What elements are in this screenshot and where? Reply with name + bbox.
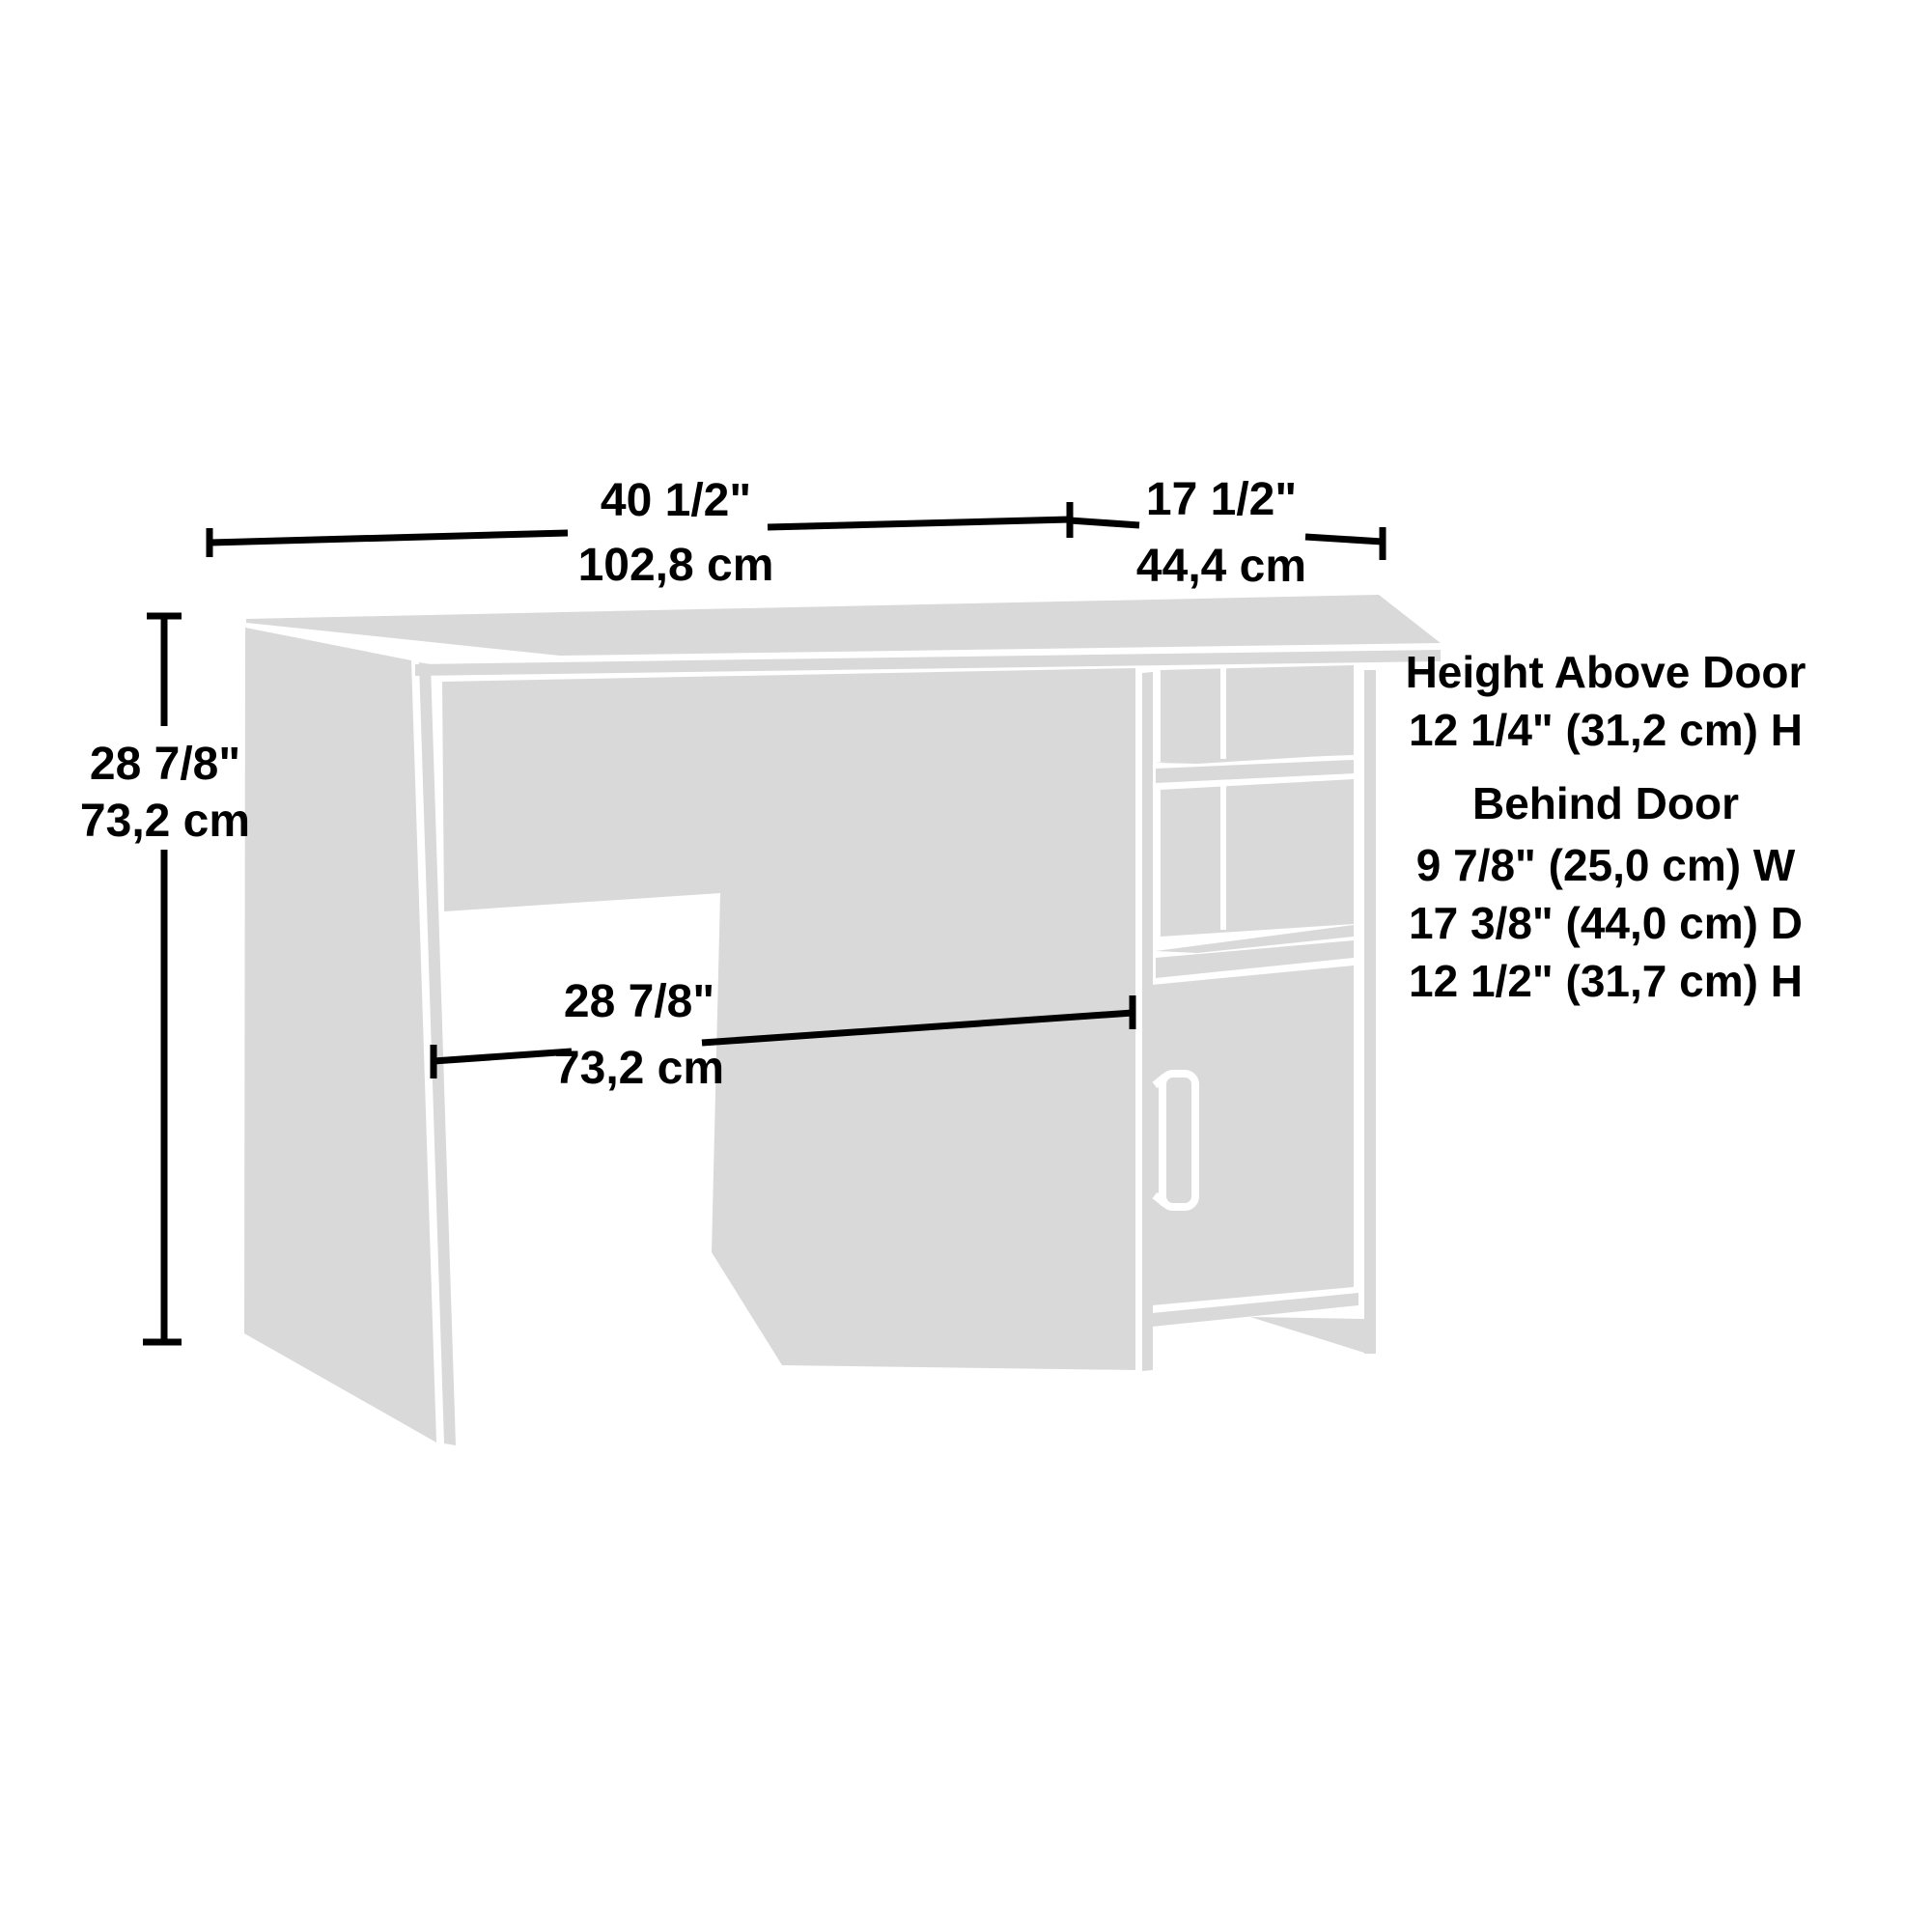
above-door-height: 12 1/4" (31,2 cm) H (1409, 705, 1803, 755)
door-annotations: Height Above Door 12 1/4" (31,2 cm) H Be… (1406, 647, 1806, 1006)
lower-cubby-back (1161, 779, 1354, 937)
depth-inches-label: 17 1/2" (1146, 474, 1297, 525)
diagram-canvas: 40 1/2" 102,8 cm 17 1/2" 44,4 cm 28 7/8"… (0, 0, 1932, 1932)
base-kick-shadow (1250, 1317, 1364, 1353)
width-cm-label: 102,8 cm (578, 540, 774, 591)
behind-door-depth: 17 3/8" (44,0 cm) D (1409, 898, 1803, 948)
cabinet-door (1152, 966, 1354, 1305)
height-inches-label: 28 7/8" (90, 739, 240, 790)
depth-dimension: 17 1/2" 44,4 cm (1070, 474, 1383, 592)
above-door-title: Height Above Door (1406, 647, 1806, 697)
height-cm-label: 73,2 cm (80, 796, 250, 847)
depth-dim-line-left (1070, 520, 1139, 525)
desk-illustration (244, 595, 1441, 1445)
knee-cm-label: 73,2 cm (554, 1043, 724, 1094)
knee-inches-label: 28 7/8" (564, 976, 714, 1027)
width-dim-line-left (210, 533, 568, 543)
width-dimension: 40 1/2" 102,8 cm (210, 475, 1070, 591)
cabinet-partition-edge (1142, 672, 1153, 1371)
width-dim-line-right (768, 519, 1070, 527)
desk-top-surface (246, 595, 1441, 656)
behind-door-width: 9 7/8" (25,0 cm) W (1416, 840, 1796, 890)
desk-dimension-diagram: 40 1/2" 102,8 cm 17 1/2" 44,4 cm 28 7/8"… (0, 0, 1932, 1932)
width-inches-label: 40 1/2" (601, 475, 751, 526)
behind-door-height: 12 1/2" (31,7 cm) H (1409, 956, 1803, 1006)
depth-cm-label: 44,4 cm (1136, 541, 1306, 592)
knee-dim-line-left (434, 1051, 572, 1061)
height-dimension: 28 7/8" 73,2 cm (80, 616, 250, 1342)
right-side-panel-edge (1364, 670, 1376, 1354)
left-side-panel (244, 628, 436, 1442)
depth-dim-line-right (1305, 537, 1383, 542)
behind-door-title: Behind Door (1472, 778, 1739, 828)
